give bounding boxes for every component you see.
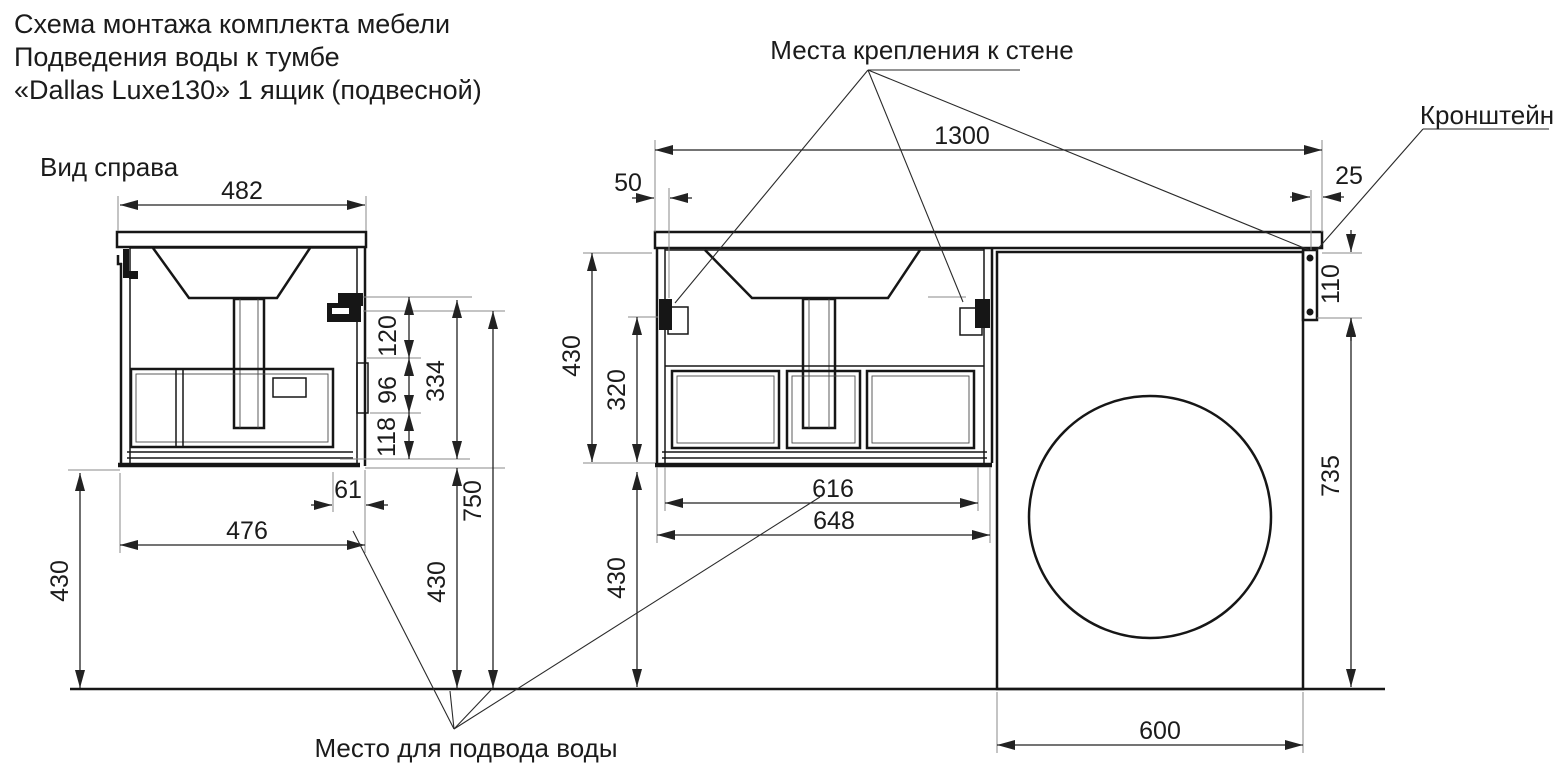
dim-334: 334: [422, 360, 450, 402]
dim-476: 476: [226, 517, 268, 545]
front-countertop: [655, 232, 1322, 248]
washing-machine-body: [997, 252, 1303, 689]
dim-648: 648: [813, 507, 855, 535]
installation-diagram: Схема монтажа комплекта мебели Подведени…: [0, 0, 1557, 775]
dim-110: 110: [1317, 264, 1345, 304]
dim-430-side-left: 430: [46, 560, 74, 602]
water-supply-label: Место для подвода воды: [314, 733, 617, 763]
dim-430-front: 430: [558, 335, 586, 377]
dim-482: 482: [221, 177, 263, 205]
side-handle: [357, 363, 368, 413]
leader-bracket: [1316, 129, 1423, 251]
bracket-screw-top: [1307, 255, 1314, 262]
dim-118: 118: [373, 417, 401, 457]
dim-320: 320: [603, 369, 631, 411]
bracket-screw-bottom: [1307, 309, 1314, 316]
leader-wall-mount-right: [868, 70, 963, 302]
front-sink-basin: [705, 250, 920, 298]
dim-50: 50: [614, 169, 642, 197]
leader-lines: [353, 70, 1549, 729]
dim-61: 61: [334, 476, 362, 504]
side-view-label: Вид справа: [40, 152, 179, 182]
title-line-2: Подведения воды к тумбе: [14, 42, 340, 72]
side-drawer-rail: [273, 378, 306, 397]
front-view-drawing: [655, 232, 1322, 465]
side-drain-pipe: [234, 299, 264, 428]
dim-430-front-floor: 430: [603, 557, 631, 599]
dim-600: 600: [1139, 717, 1181, 745]
title-block: Схема монтажа комплекта мебели Подведени…: [14, 9, 482, 182]
side-countertop: [117, 232, 366, 247]
dim-25: 25: [1335, 162, 1363, 190]
dim-96: 96: [374, 376, 402, 404]
title-line-3: «Dallas Luxe130» 1 ящик (подвесной): [14, 75, 482, 105]
dim-1300: 1300: [934, 122, 990, 150]
front-left-mount-bracket: [659, 299, 672, 330]
leader-wall-mount-bracket: [868, 70, 1309, 250]
wall-bracket: [1303, 250, 1317, 320]
installation-diagram-page: Схема монтажа комплекта мебели Подведени…: [0, 0, 1557, 775]
side-view-drawing: [117, 232, 368, 466]
dim-616: 616: [812, 475, 854, 503]
side-hanging-rail: [123, 249, 129, 278]
front-drawer-right: [867, 371, 974, 448]
dim-735: 735: [1317, 455, 1345, 497]
dimension-texts: 482 120 96 118 334 750 430 430 61 476 13…: [46, 122, 1363, 745]
front-drawer-middle: [787, 371, 860, 448]
dim-430-side-mid: 430: [423, 561, 451, 603]
title-line-1: Схема монтажа комплекта мебели: [14, 9, 450, 39]
leader-water-side: [353, 531, 454, 729]
wall-mounting-label: Места крепления к стене: [770, 35, 1073, 65]
washing-machine-drawing: [997, 252, 1303, 689]
dim-120: 120: [374, 315, 402, 357]
leader-wall-mount-left: [675, 70, 868, 303]
front-drain-pipe: [803, 299, 835, 428]
side-sink-basin: [153, 248, 310, 298]
side-drawer-box: [131, 369, 333, 447]
front-drawer-left: [672, 371, 779, 448]
dim-750: 750: [459, 480, 487, 522]
bracket-label: Кронштейн: [1420, 100, 1554, 130]
washing-machine-door: [1029, 396, 1271, 638]
side-wall-hook: [118, 255, 122, 264]
